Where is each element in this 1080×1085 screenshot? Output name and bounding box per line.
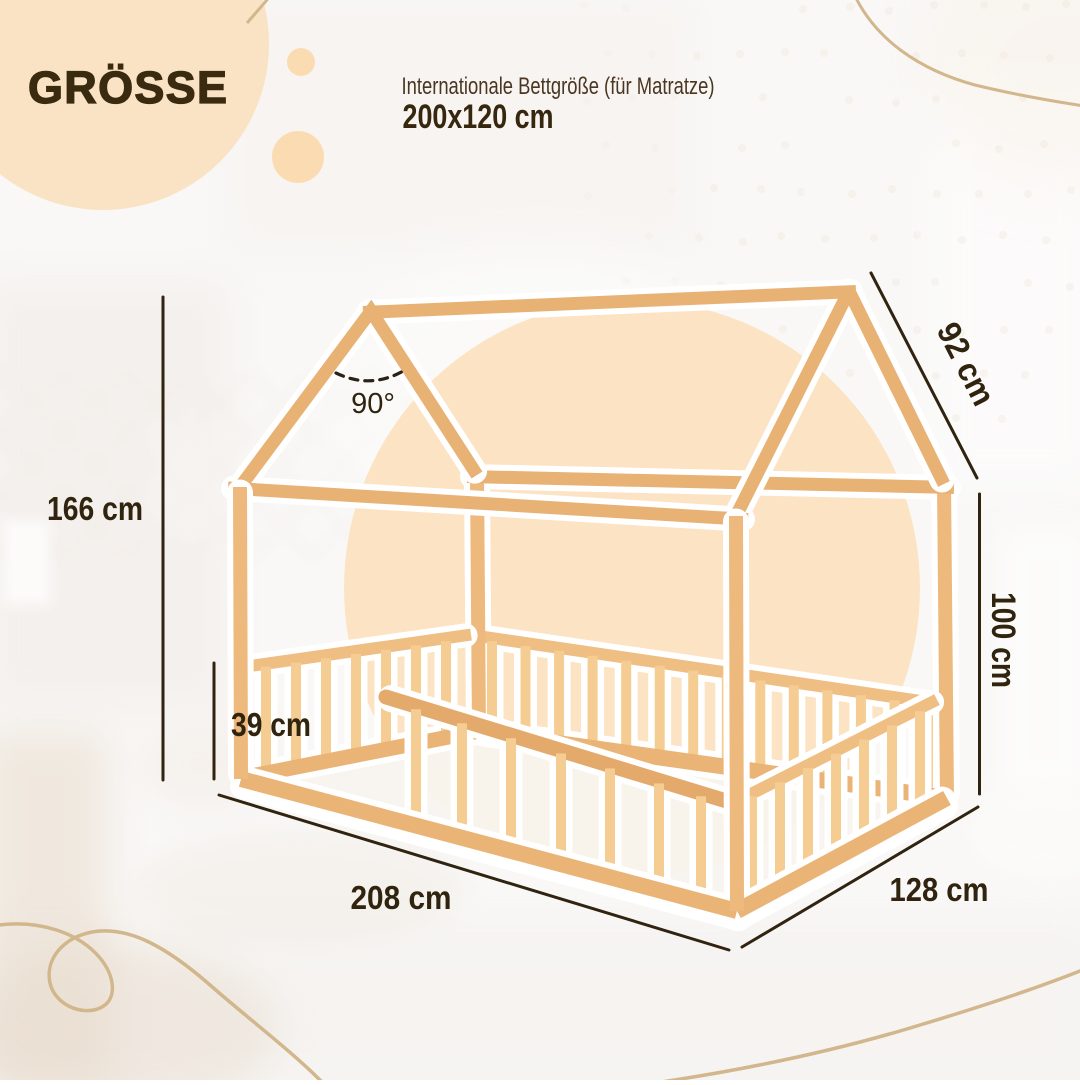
svg-text:GRÖSSE: GRÖSSE <box>28 62 227 113</box>
svg-text:100 cm: 100 cm <box>984 592 1022 688</box>
svg-text:39 cm: 39 cm <box>231 706 311 743</box>
svg-text:128 cm: 128 cm <box>890 871 989 908</box>
svg-text:Internationale Bettgröße (für: Internationale Bettgröße (für Matratze) <box>402 73 715 100</box>
svg-text:200x120 cm: 200x120 cm <box>403 98 554 136</box>
svg-text:166 cm: 166 cm <box>47 490 143 527</box>
svg-text:208 cm: 208 cm <box>351 879 452 916</box>
svg-text:90°: 90° <box>351 388 395 420</box>
